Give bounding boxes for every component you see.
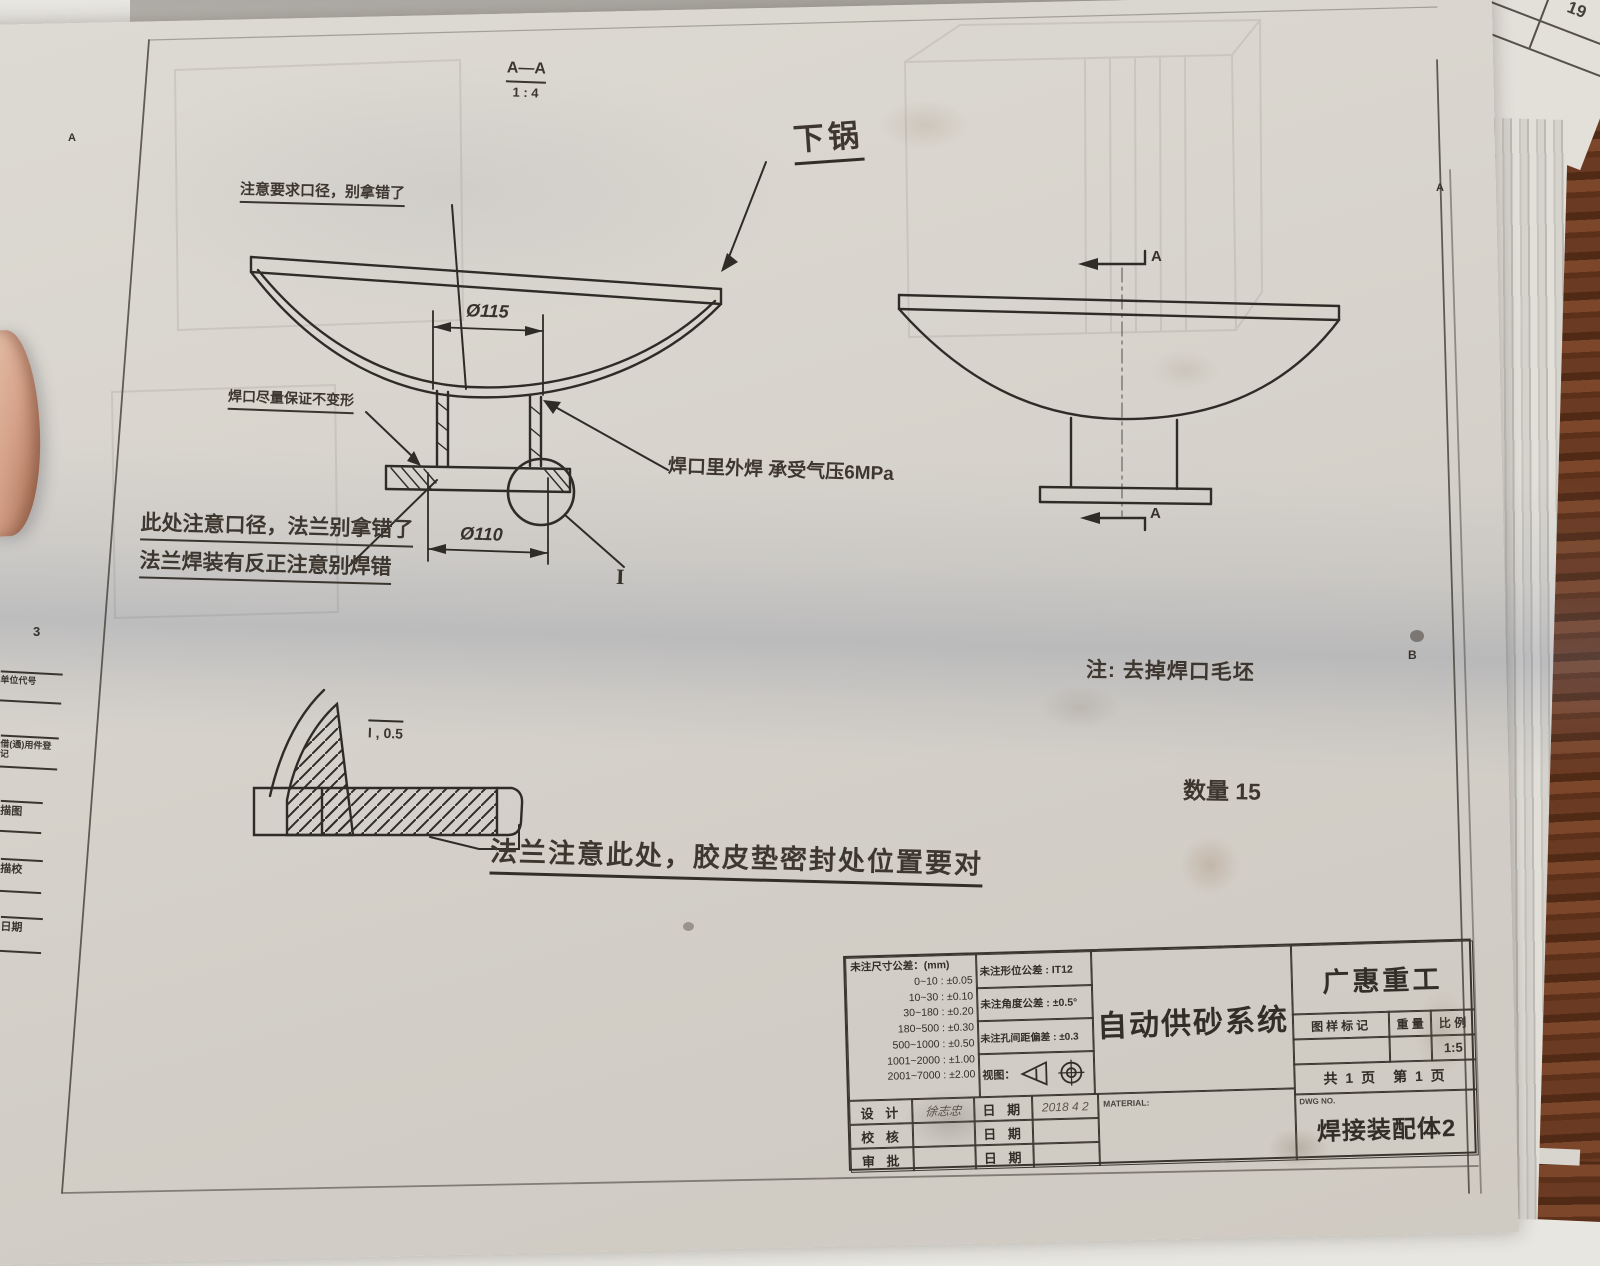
design-date-label-cell: 日 期: [973, 1096, 1034, 1122]
note-deburr: 注: 去掉焊口毛坯: [1086, 654, 1255, 687]
quantity-note: 数量 15: [1183, 771, 1262, 806]
section-label: A—A: [506, 59, 546, 83]
design-role-cell: 设 计: [849, 1099, 914, 1125]
hole-tolerance-text: 未注孔间距偏差 : ±0.3: [980, 1027, 1079, 1045]
section-label-group: A—A 1 : 4: [497, 59, 554, 101]
pages-text: 共 1 页 第 1 页: [1323, 1065, 1447, 1088]
margin-row-label: 借(通)用件登记: [0, 738, 52, 758]
tolerance-table: 未注尺寸公差：(mm) 0~10 : ±0.05 10~30 : ±0.10 3…: [845, 954, 981, 1101]
projection-cone-icon: [1019, 1060, 1054, 1087]
design-role-label: 设 计: [860, 1102, 902, 1122]
mark-label: 图样标记: [1311, 1016, 1371, 1035]
geo-tolerance-text: 未注形位公差 : IT12: [979, 962, 1073, 980]
company-name: 广惠重工: [1322, 957, 1443, 999]
approve-date-value-cell: [1032, 1142, 1101, 1168]
scale-label-cell: 比 例: [1430, 1008, 1476, 1036]
design-date: 2018 4 2: [1042, 1099, 1089, 1114]
approve-role-label: 审 批: [862, 1150, 904, 1170]
date-label: 日 期: [982, 1099, 1024, 1119]
date-label: 日 期: [983, 1122, 1025, 1142]
detail-scale-group: I , 0.5: [368, 719, 404, 743]
margin-row: 描图: [0, 800, 43, 834]
section-scale: 1 : 4: [497, 84, 553, 101]
check-name-cell: [912, 1121, 977, 1147]
date-label: 日 期: [984, 1146, 1026, 1166]
note-flange-line1: 此处注意口径，法兰别拿错了: [140, 506, 414, 547]
leader-lines: [349, 162, 766, 566]
margin-row-label: 单位代号: [0, 674, 36, 686]
right-view: [899, 251, 1339, 530]
check-date-value-cell: [1032, 1118, 1101, 1144]
approve-role-cell: 审 批: [850, 1147, 915, 1173]
company-cell: 广惠重工: [1290, 940, 1475, 1015]
note-weld-shape: 焊口尽量保证不变形: [228, 386, 355, 414]
projection-view-cell: 视图：: [978, 1050, 1096, 1097]
material-cell: MATERIAL:: [1097, 1088, 1298, 1166]
drawing-name-cell: DWG NO. 焊接装配体2: [1294, 1088, 1479, 1160]
drawing-title-cell: 自动供砂系统: [1090, 945, 1296, 1094]
check-date-label-cell: 日 期: [974, 1120, 1035, 1146]
check-role-label: 校 核: [861, 1126, 903, 1146]
design-date-value-cell: 2018 4 2: [1031, 1094, 1100, 1120]
zone-number: 3: [33, 624, 40, 639]
zone-letter: A: [1436, 182, 1444, 194]
detail-view: [254, 690, 522, 849]
margin-row: 借(通)用件登记: [0, 735, 59, 771]
zone-letter: A: [68, 132, 76, 144]
margin-row: 单位代号: [0, 670, 63, 704]
angle-tolerance-text: 未注角度公差 : ±0.5°: [980, 994, 1077, 1012]
margin-row: 描校: [0, 858, 43, 894]
check-role-cell: 校 核: [850, 1123, 915, 1149]
section-arrow-letter-bottom: A: [1150, 505, 1161, 522]
design-name-cell: 徐志忠: [911, 1097, 976, 1123]
designer-signature: 徐志忠: [924, 1101, 962, 1119]
projection-target-icon: [1057, 1058, 1086, 1087]
approve-date-label-cell: 日 期: [974, 1144, 1035, 1170]
margin-row-label: 日期: [0, 921, 23, 934]
dim-label-top: Ø115: [466, 300, 509, 322]
margin-row-label: 描校: [0, 863, 23, 876]
margin-row-label: 描图: [0, 805, 23, 818]
weight-label: 重 量: [1396, 1015, 1424, 1033]
weight-value-cell: [1388, 1035, 1433, 1063]
drawing-name: 焊接装配体2: [1296, 1107, 1478, 1147]
scale-label: 比 例: [1439, 1014, 1467, 1032]
dwg-no-label: DWG NO.: [1295, 1089, 1476, 1106]
weight-label-cell: 重 量: [1388, 1010, 1433, 1038]
projection-view-label: 视图：: [982, 1066, 1015, 1083]
detail-ref-letter: I: [616, 564, 625, 590]
photo-of-engineering-drawing: { "colors": {"ink": "#2f2b26", "paper": …: [0, 0, 1600, 1200]
section-arrow-letter-top: A: [1151, 248, 1162, 265]
note-flange-group: 此处注意口径，法兰别拿错了 法兰焊装有反正注意别焊错: [139, 506, 414, 585]
scale-value-cell: 1:5: [1430, 1033, 1476, 1061]
detail-scale-label: I , 0.5: [368, 724, 404, 741]
note-flange-line2: 法兰焊装有反正注意别焊错: [139, 544, 392, 585]
approve-name-cell: [912, 1145, 977, 1171]
material-label: MATERIAL:: [1098, 1089, 1295, 1108]
scale-value: 1:5: [1444, 1040, 1463, 1056]
tolerance-row: 2001~7000 : ±2.00: [853, 1068, 975, 1087]
part-label: 下锅: [791, 110, 864, 166]
margin-row: 日期: [0, 916, 43, 954]
note-top: 注意要求口径，别拿错了: [240, 178, 406, 207]
title-block: 未注尺寸公差：(mm) 0~10 : ±0.05 10~30 : ±0.10 3…: [843, 938, 1477, 1170]
drawing-title: 自动供砂系统: [1096, 994, 1289, 1045]
dim-label-bottom: Ø110: [460, 523, 503, 545]
zone-letter: B: [1408, 648, 1417, 662]
